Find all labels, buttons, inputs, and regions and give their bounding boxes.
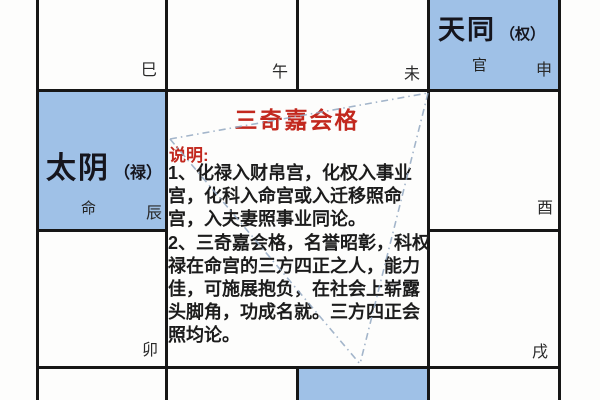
- palace-label-guan: 官: [472, 58, 487, 73]
- explanation-line: 2、三奇嘉会格，名誉昭彰，科权: [168, 232, 434, 255]
- grid-line-h1: [36, 89, 561, 92]
- branch-wu: 午: [272, 65, 288, 81]
- explanation-line: 禄在命宫的三方四正之人，能力: [168, 255, 434, 278]
- explanation-line: 照均论。: [168, 324, 434, 347]
- palace-zi-highlight: [299, 369, 427, 400]
- branch-shen: 申: [536, 63, 552, 79]
- explanation-line: 头脚角，功成名就。三方四正会: [168, 301, 434, 324]
- branch-you: 酉: [537, 201, 553, 217]
- grid-line-h2-right: [427, 229, 561, 232]
- explanation-line: 1、化禄入财帛宫，化权入事业: [168, 162, 434, 185]
- grid-line-v-right: [558, 0, 561, 400]
- branch-xu: 戌: [532, 345, 548, 361]
- star-taiyin-hua: （禄）: [114, 165, 162, 182]
- branch-chen: 辰: [146, 206, 162, 222]
- star-taiyin: 太阴（禄）: [46, 143, 162, 187]
- explanation-line: 宫，化科入命宫或入迁移照命: [168, 185, 434, 208]
- star-tiantong-name: 天同: [438, 15, 496, 45]
- star-taiyin-name: 太阴: [46, 152, 110, 185]
- grid-line-h3: [36, 366, 561, 369]
- grid-line-h2-left: [36, 229, 168, 232]
- branch-si: 巳: [141, 63, 157, 79]
- explanation-line: 佳，可施展抱负，在社会上崭露: [168, 278, 434, 301]
- grid-line-v3-top: [296, 0, 299, 90]
- star-tiantong-hua: （权）: [500, 26, 545, 43]
- pattern-title: 三奇嘉会格: [166, 101, 428, 135]
- explanation-line: 宫，入夫妻照事业同论。: [168, 208, 434, 231]
- palace-label-ming: 命: [81, 201, 96, 216]
- grid-line-v-left: [36, 0, 39, 400]
- branch-wei: 未: [404, 67, 420, 83]
- branch-mao: 卯: [142, 343, 158, 359]
- star-tiantong: 天同（权）: [438, 8, 545, 47]
- explanation-text: 1、化禄入财帛宫，化权入事业 宫，化科入命宫或入迁移照命 宫，入夫妻照事业同论。…: [168, 162, 434, 348]
- ziwei-chart: 巳 午 未 申 官 酉 命 辰 卯 戌 天同（权） 太阴（禄） 三奇嘉会格 说明…: [0, 0, 600, 400]
- grid-line-v3-bottom: [296, 367, 299, 400]
